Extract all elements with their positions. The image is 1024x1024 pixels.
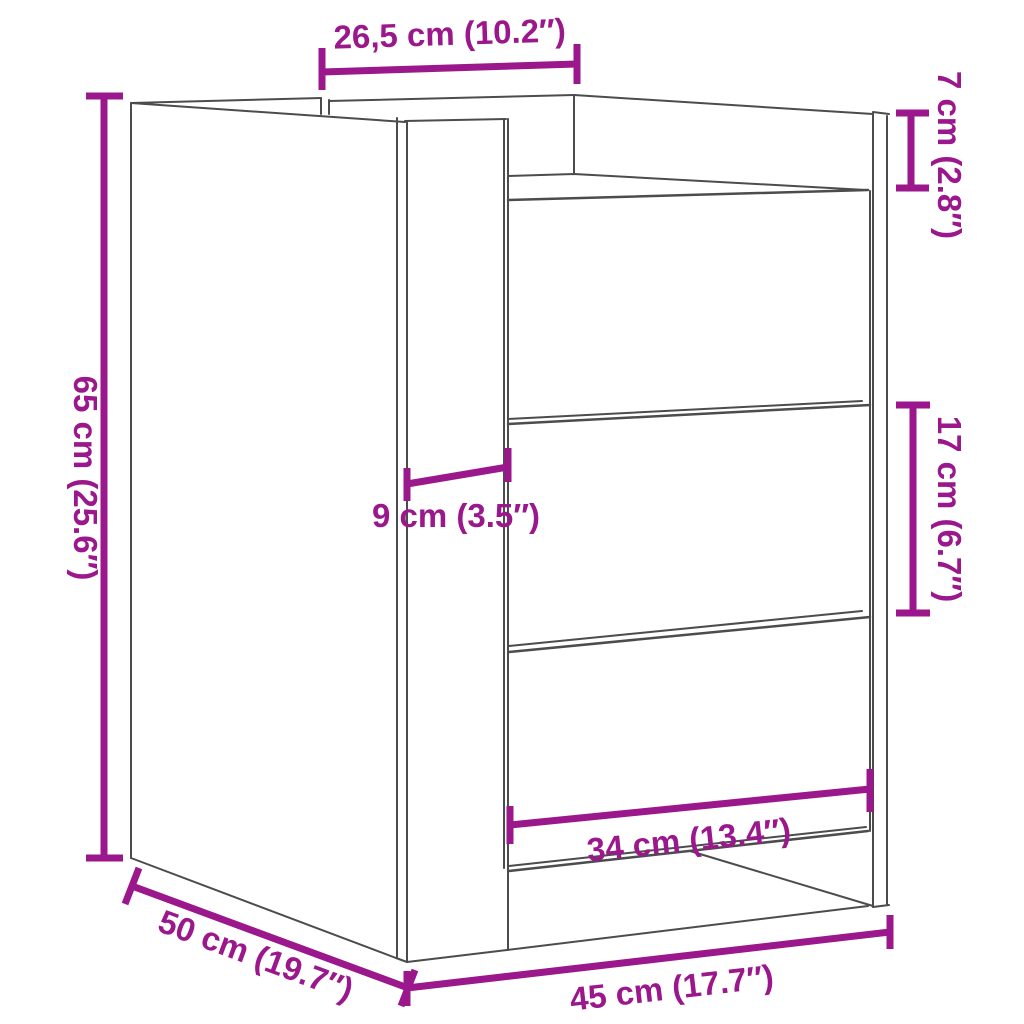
dimension-diagram: 26,5 cm (10.2″) 7 cm (2.8″) 65 cm (25.6″… bbox=[0, 0, 1024, 1024]
diagram-canvas: 26,5 cm (10.2″) 7 cm (2.8″) 65 cm (25.6″… bbox=[0, 0, 1024, 1024]
dimension-depth: 50 cm (19.7″) bbox=[125, 868, 415, 1008]
dimension-label-drawer-front-height: 17 cm (6.7″) bbox=[931, 416, 968, 602]
dimension-label-front-offset: 9 cm (3.5″) bbox=[372, 497, 540, 534]
drawer-2 bbox=[509, 611, 870, 652]
dimension-label-top-clearance: 7 cm (2.8″) bbox=[931, 71, 968, 239]
dimension-width: 45 cm (17.7″) bbox=[407, 915, 890, 1018]
dimension-drawer-front-width: 34 cm (13.4″) bbox=[510, 769, 870, 868]
open-compartment-shelf bbox=[508, 174, 868, 200]
dimension-top-depth: 26,5 cm (10.2″) bbox=[322, 11, 577, 90]
dimension-label-drawer-front-width: 34 cm (13.4″) bbox=[585, 811, 792, 869]
dimension-height: 65 cm (25.6″) bbox=[67, 96, 123, 858]
dimension-label-height: 65 cm (25.6″) bbox=[67, 376, 104, 581]
dimension-drawer-front-height: 17 cm (6.7″) bbox=[896, 405, 968, 613]
dimension-label-top-depth: 26,5 cm (10.2″) bbox=[333, 11, 566, 55]
right-side-panel bbox=[873, 113, 889, 907]
drawer-1 bbox=[508, 401, 870, 424]
top-panel bbox=[329, 95, 889, 174]
dimension-top-clearance: 7 cm (2.8″) bbox=[896, 71, 968, 239]
